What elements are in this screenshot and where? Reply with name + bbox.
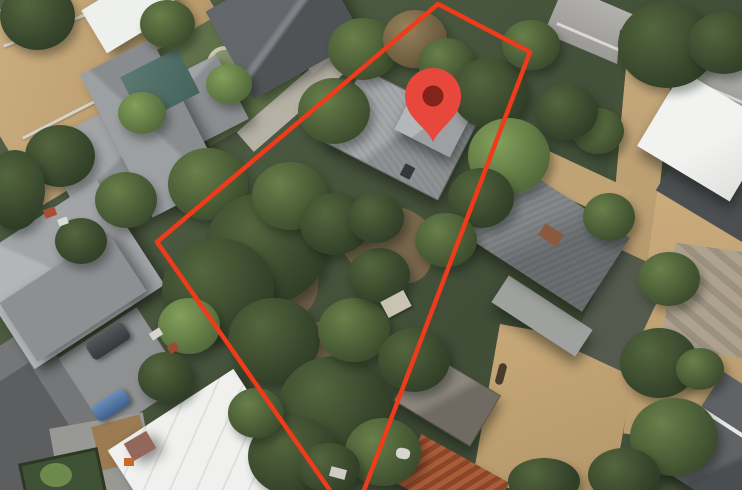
white-rock <box>395 447 411 460</box>
greenhouse-frame <box>380 290 411 318</box>
blue-parked-car <box>90 387 132 423</box>
red-yard-clutter <box>167 342 180 354</box>
satellite-map-canvas[interactable] <box>0 0 742 490</box>
red-yard-clutter <box>43 206 57 219</box>
white-yard-clutter <box>57 217 69 227</box>
white-yard-clutter <box>149 327 163 340</box>
items-layer <box>0 0 742 490</box>
dark-parked-car <box>84 321 132 362</box>
pin-inner-dot <box>423 86 444 107</box>
fallen-log <box>494 362 507 385</box>
white-yard-clutter <box>329 466 347 480</box>
